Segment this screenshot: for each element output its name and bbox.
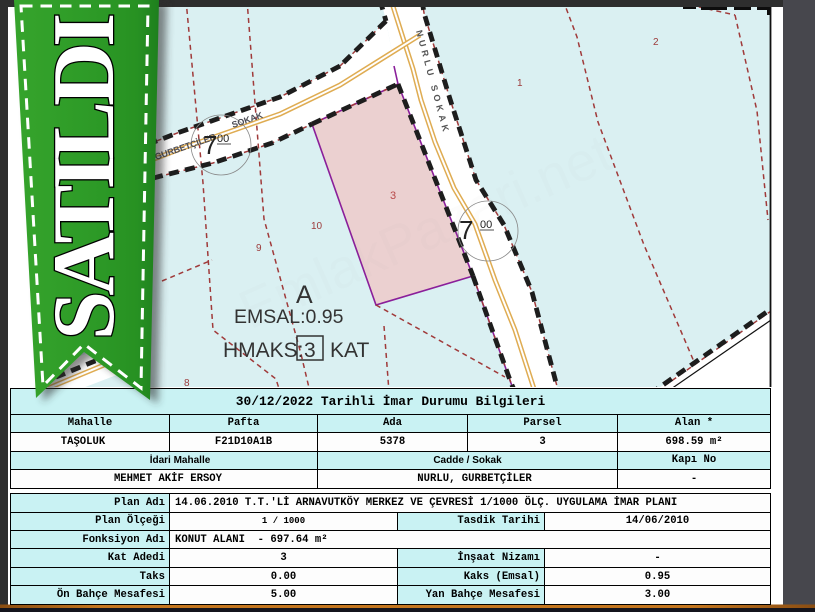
svg-text:SATILDI: SATILDI: [36, 15, 133, 340]
